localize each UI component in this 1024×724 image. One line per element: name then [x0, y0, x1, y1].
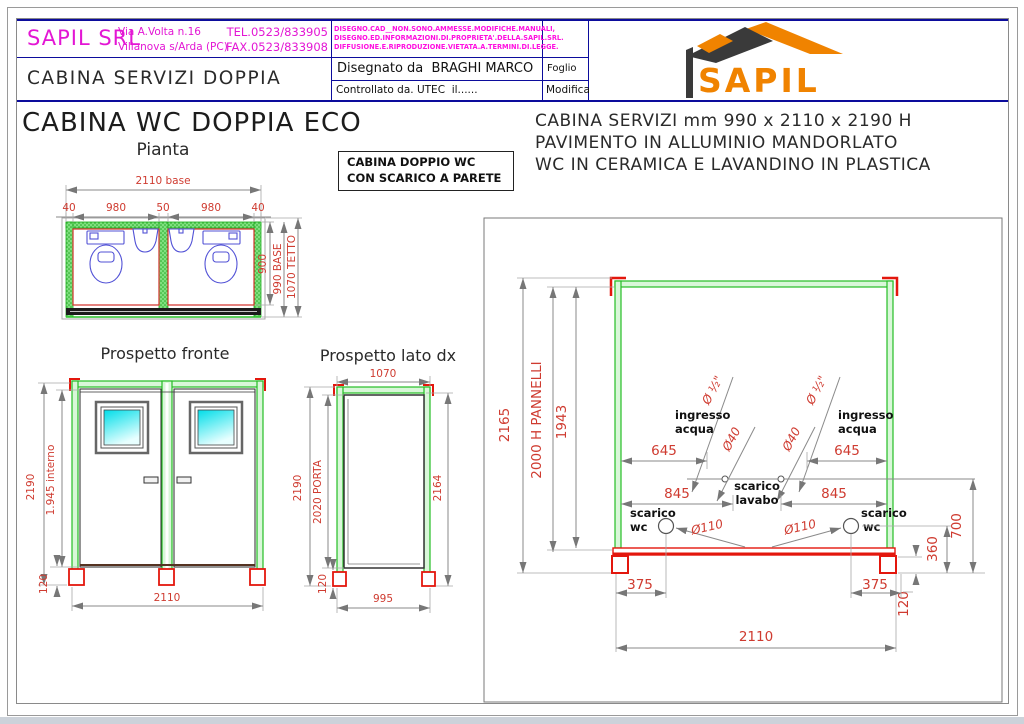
revision-label: Modifica	[546, 84, 590, 96]
dim-side-2164: 2164	[432, 474, 444, 501]
titleblock-vline-1	[331, 19, 332, 101]
dim-375-left: 375	[627, 577, 653, 593]
dim-side-995: 995	[373, 593, 393, 605]
svg-text:acqua: acqua	[675, 422, 714, 436]
side-frame	[334, 385, 433, 572]
titleblock-line-bottom	[17, 100, 1008, 102]
dim-980-right: 980	[201, 202, 221, 214]
dim-700: 700	[949, 513, 965, 539]
dim-1070-tetto: 1070 TETTO	[286, 235, 298, 299]
label-scarico-wc-right: scarico	[861, 506, 907, 520]
label-scarico-wc-left: scarico	[630, 506, 676, 520]
company-address-line2: Villanova s/Arda (PC)	[118, 41, 228, 53]
wc-drain-left	[659, 519, 674, 534]
dim-half-inch-right: Ø ½"	[803, 373, 830, 407]
spec-line2: PAVIMENTO IN ALLUMINIO MANDORLATO	[535, 132, 931, 154]
wc-drain-right	[844, 519, 859, 534]
company-fax: FAX.0523/833908	[214, 40, 328, 54]
label-ingresso-acqua-right: ingresso	[838, 408, 894, 422]
titleblock-line-mid2	[331, 80, 588, 81]
dim-2110-base: 2110 base	[135, 175, 190, 187]
dim-2165: 2165	[497, 408, 513, 442]
dim-110-left: Ø110	[689, 517, 725, 538]
dim-375-right: 375	[862, 577, 888, 593]
dim-front-interno: 1.945 interno	[45, 445, 57, 516]
dim-645-left: 645	[651, 443, 677, 459]
note-box: CABINA DOPPIO WC CON SCARICO A PARETE	[338, 151, 514, 191]
dim-360: 360	[925, 536, 941, 562]
dim-front-2110: 2110	[154, 592, 181, 604]
side-elevation: 1070 2190 2020 PORTA 120 2164 995	[290, 340, 470, 620]
dim-845-right: 845	[821, 486, 847, 502]
document-title: CABINA SERVIZI DOPPIA	[27, 68, 281, 89]
plan-view: 2110 base 40 980 50 980 40 900 990 BASE …	[30, 170, 330, 330]
dim-half-inch-left: Ø ½"	[699, 373, 726, 407]
drawing-sheet: { "title_block": { "company": "SAPIL SRL…	[0, 0, 1024, 724]
svg-text:wc: wc	[630, 520, 648, 534]
dim-980-left: 980	[106, 202, 126, 214]
company-address-line1: Via A.Volta n.16	[118, 26, 201, 38]
side-feet	[333, 572, 435, 586]
dim-side-2190: 2190	[292, 475, 304, 502]
spec-line1: CABINA SERVIZI mm 990 x 2110 x 2190 H	[535, 110, 931, 132]
door-handle-right	[177, 477, 191, 483]
spec-text: CABINA SERVIZI mm 990 x 2110 x 2190 H PA…	[535, 110, 931, 176]
plan-sink-left	[133, 229, 158, 252]
sheet-label: Foglio	[547, 63, 577, 74]
logo-text: SAPIL	[698, 61, 820, 100]
front-feet	[69, 569, 265, 585]
dim-645-right: 645	[834, 443, 860, 459]
plan-toilet-left	[87, 231, 124, 283]
dim-side-2020-porta: 2020 PORTA	[312, 459, 324, 524]
titleblock-line-mid1	[17, 57, 588, 58]
plan-view-label: Pianta	[103, 140, 223, 160]
dim-1943: 1943	[554, 405, 570, 439]
legal-notice-line3: DIFFUSIONE.E.RIPRODUZIONE.VIETATA.A.TERM…	[334, 43, 559, 51]
dim-990-base: 990 BASE	[272, 243, 284, 294]
svg-text:wc: wc	[863, 520, 881, 534]
plan-toilet-right	[203, 231, 240, 283]
dim-40-left: 40	[62, 202, 75, 214]
dim-side-1070: 1070	[370, 368, 397, 380]
spec-line3: WC IN CERAMICA E LAVANDINO IN PLASTICA	[535, 154, 931, 176]
drawn-by: Disegnato da BRAGHI MARCO	[337, 61, 533, 76]
label-scarico-lavabo: scarico	[734, 479, 780, 493]
legal-notice-line2: DISEGNO.ED.INFORMAZIONI.DI.PROPRIETA'.DE…	[334, 34, 564, 42]
dim-2000-pannelli: 2000 H PANNELLI	[529, 361, 545, 478]
dim-50-center: 50	[156, 202, 169, 214]
dim-front-120: 120	[38, 574, 50, 594]
dim-40-left: Ø40	[719, 425, 744, 455]
dim-120: 120	[896, 591, 912, 617]
detail-left-dimensions: 2165 2000 H PANNELLI 1943	[497, 278, 614, 573]
legal-notice-line1: DISEGNO.CAD__NON.SONO.AMMESSE.MODIFICHE.…	[334, 25, 555, 33]
dim-detail-2110: 2110	[739, 629, 773, 645]
dim-110-right: Ø110	[782, 517, 818, 538]
door-handle-left	[144, 477, 158, 483]
dim-900: 900	[257, 254, 269, 274]
dim-side-120: 120	[317, 574, 329, 594]
page-bottom-strip	[0, 717, 1024, 724]
note-line2: CON SCARICO A PARETE	[347, 170, 513, 186]
svg-text:lavabo: lavabo	[735, 493, 778, 507]
detail-view: 2165 2000 H PANNELLI 1943 ingresso acqua…	[480, 214, 1008, 708]
dim-845-left: 845	[664, 486, 690, 502]
company-logo: SAPIL	[600, 20, 900, 100]
label-ingresso-acqua-left: ingresso	[675, 408, 731, 422]
dim-front-2190: 2190	[25, 474, 37, 501]
note-line1: CABINA DOPPIO WC	[347, 154, 513, 170]
dim-40-right: Ø40	[779, 425, 804, 455]
dim-40-right: 40	[251, 202, 264, 214]
page-title: CABINA WC DOPPIA ECO	[22, 108, 362, 138]
checked-by: Controllato da. UTEC il......	[336, 84, 478, 96]
plan-sink-right	[169, 229, 194, 252]
svg-text:acqua: acqua	[838, 422, 877, 436]
logo-bar-icon	[686, 47, 693, 98]
company-tel: TEL.0523/833905	[214, 25, 328, 39]
front-elevation: 2190 1.945 interno 120 2110	[20, 340, 320, 620]
